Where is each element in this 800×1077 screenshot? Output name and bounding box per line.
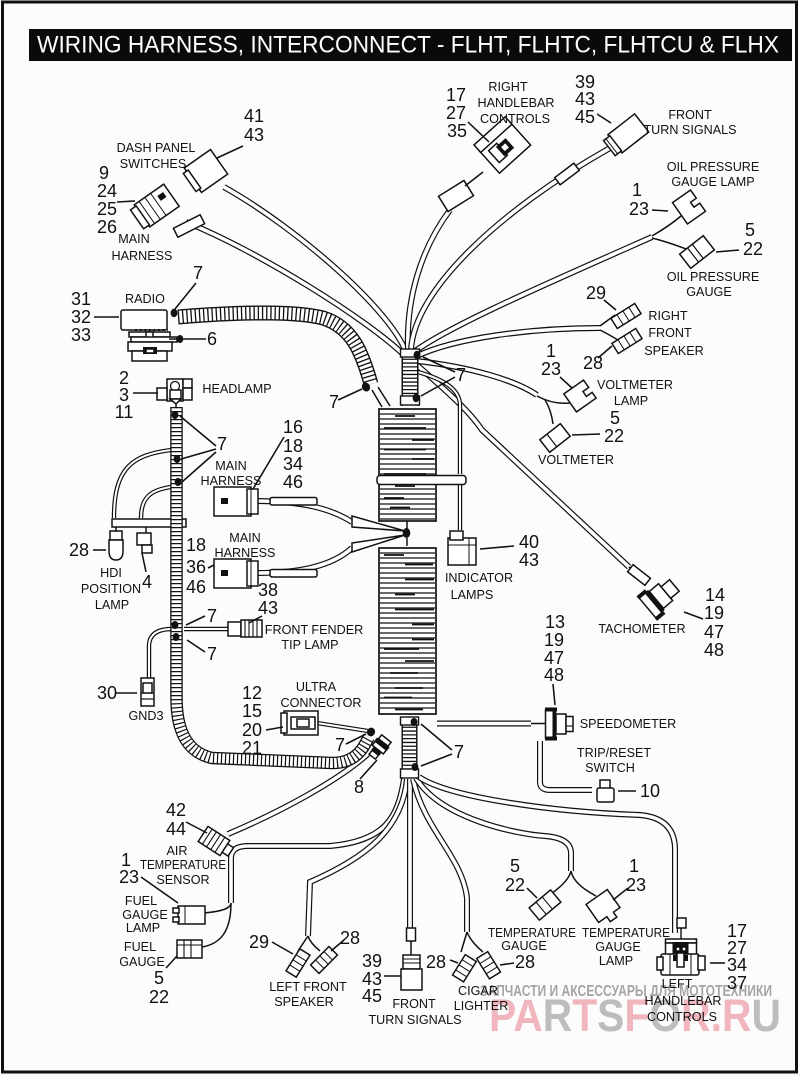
svg-text:TURN SIGNALS: TURN SIGNALS [643,123,736,137]
svg-text:MAIN: MAIN [229,531,260,545]
svg-text:GND3: GND3 [129,709,164,723]
svg-text:FRONT FENDER: FRONT FENDER [265,623,363,637]
svg-text:1: 1 [629,856,639,876]
svg-text:HARNESS: HARNESS [112,249,173,263]
svg-text:35: 35 [447,121,467,141]
svg-text:7: 7 [335,735,345,755]
svg-text:RADIO: RADIO [125,292,165,306]
svg-text:5: 5 [610,408,620,428]
svg-text:23: 23 [626,875,646,895]
svg-text:FUEL: FUEL [125,894,157,908]
svg-text:34: 34 [727,955,747,975]
svg-text:TIP LAMP: TIP LAMP [281,638,338,652]
svg-text:20: 20 [242,720,262,740]
svg-text:5: 5 [154,968,164,988]
svg-text:7: 7 [456,365,466,385]
svg-text:28: 28 [583,353,603,373]
svg-text:46: 46 [283,472,303,492]
svg-text:LAMPS: LAMPS [451,588,494,602]
svg-text:10: 10 [640,781,660,801]
svg-text:29: 29 [586,283,606,303]
svg-text:ULTRA: ULTRA [296,680,337,694]
svg-text:9: 9 [99,163,109,183]
svg-text:HDI: HDI [100,566,122,580]
svg-text:TEMPERATURE: TEMPERATURE [140,858,226,872]
svg-text:SPEAKER: SPEAKER [644,344,704,358]
svg-text:45: 45 [575,107,595,127]
svg-text:RIGHT: RIGHT [648,309,687,323]
svg-text:43: 43 [258,598,278,618]
svg-text:22: 22 [604,426,624,446]
svg-text:GAUGE: GAUGE [501,939,547,953]
svg-text:GAUGE: GAUGE [595,940,641,954]
svg-text:FUEL: FUEL [124,940,156,954]
svg-text:17: 17 [446,85,466,105]
svg-text:SWITCH: SWITCH [585,761,635,775]
svg-text:LAMP: LAMP [599,954,633,968]
svg-text:38: 38 [258,580,278,600]
svg-text:46: 46 [186,577,206,597]
svg-text:22: 22 [743,239,763,259]
svg-text:4: 4 [142,572,152,592]
svg-text:28: 28 [515,952,535,972]
svg-text:MAIN: MAIN [118,232,149,246]
svg-text:22: 22 [149,987,169,1007]
svg-text:WIRING HARNESS, INTERCONNECT -: WIRING HARNESS, INTERCONNECT - FLHT, FLH… [37,32,779,59]
svg-text:7: 7 [454,742,464,762]
svg-text:HANDLEBAR: HANDLEBAR [478,96,555,110]
svg-text:23: 23 [119,867,139,887]
svg-text:16: 16 [283,417,303,437]
svg-text:POSITION: POSITION [81,582,141,596]
svg-text:34: 34 [283,454,303,474]
svg-text:5: 5 [510,856,520,876]
svg-text:SWITCHES: SWITCHES [120,157,186,171]
svg-text:28: 28 [340,928,360,948]
svg-text:SENSOR: SENSOR [156,873,209,887]
svg-text:11: 11 [115,402,134,422]
svg-text:GAUGE: GAUGE [686,285,732,299]
svg-text:TRIP/RESET: TRIP/RESET [577,746,651,760]
svg-text:VOLTMETER: VOLTMETER [538,453,614,467]
svg-text:32: 32 [71,307,91,327]
svg-text:13: 13 [545,612,565,632]
svg-text:7: 7 [329,392,339,412]
svg-text:8: 8 [354,777,364,797]
svg-text:29: 29 [249,932,269,952]
svg-text:33: 33 [71,325,91,345]
svg-text:23: 23 [541,359,561,379]
svg-text:7: 7 [193,263,203,283]
svg-text:40: 40 [519,532,539,552]
svg-text:19: 19 [544,630,564,650]
svg-text:28: 28 [69,540,89,560]
svg-text:43: 43 [244,125,264,145]
svg-text:28: 28 [426,952,446,972]
svg-text:47: 47 [704,622,724,642]
svg-text:43: 43 [519,550,539,570]
svg-text:CIGAR: CIGAR [458,984,498,998]
svg-text:GAUGE: GAUGE [122,908,168,922]
svg-text:31: 31 [71,289,91,309]
svg-text:48: 48 [704,640,724,660]
svg-text:41: 41 [244,106,264,126]
svg-text:OIL PRESSURE: OIL PRESSURE [667,270,760,284]
svg-text:FRONT: FRONT [392,997,436,1011]
svg-text:44: 44 [166,819,186,839]
svg-text:21: 21 [242,738,262,758]
svg-text:TEMPERATURE: TEMPERATURE [488,926,576,940]
svg-text:HEADLAMP: HEADLAMP [202,382,271,396]
svg-text:48: 48 [544,665,564,685]
svg-text:LAMP: LAMP [614,394,648,408]
svg-text:6: 6 [207,329,217,349]
svg-text:FRONT: FRONT [668,108,712,122]
svg-text:39: 39 [362,951,382,971]
svg-text:26: 26 [97,217,117,237]
svg-text:GAUGE: GAUGE [119,955,165,969]
svg-text:7: 7 [207,644,217,664]
svg-text:GAUGE LAMP: GAUGE LAMP [671,175,754,189]
svg-text:7: 7 [207,606,217,626]
svg-text:1: 1 [546,341,556,361]
svg-text:23: 23 [629,199,649,219]
svg-text:43: 43 [575,89,595,109]
svg-text:HARNESS: HARNESS [201,474,262,488]
svg-text:25: 25 [97,199,117,219]
svg-text:LEFT FRONT: LEFT FRONT [269,980,347,994]
svg-text:36: 36 [186,557,206,577]
svg-text:CONTROLS: CONTROLS [480,112,550,126]
svg-text:TACHOMETER: TACHOMETER [598,622,685,636]
svg-text:LAMP: LAMP [126,921,160,935]
svg-text:42: 42 [166,800,186,820]
svg-text:45: 45 [362,986,382,1006]
svg-text:HARNESS: HARNESS [215,546,276,560]
svg-text:OIL PRESSURE: OIL PRESSURE [667,160,760,174]
svg-text:LIGHTER: LIGHTER [454,999,509,1013]
svg-text:15: 15 [242,701,262,721]
svg-text:1: 1 [632,180,642,200]
svg-text:CONTROLS: CONTROLS [647,1010,717,1024]
svg-text:22: 22 [505,875,525,895]
svg-text:PARTSFOR.RU: PARTSFOR.RU [489,990,781,1041]
svg-text:SPEAKER: SPEAKER [274,995,334,1009]
svg-text:HANDLEBAR: HANDLEBAR [645,994,722,1008]
svg-text:37: 37 [727,973,747,993]
svg-text:LAMP: LAMP [95,598,129,612]
svg-text:AIR: AIR [167,844,188,858]
svg-text:24: 24 [97,181,117,201]
svg-text:5: 5 [745,220,755,240]
svg-text:VOLTMETER: VOLTMETER [597,378,673,392]
svg-text:14: 14 [705,585,725,605]
svg-text:TEMPERATURE: TEMPERATURE [582,926,670,940]
svg-text:MAIN: MAIN [215,459,246,473]
svg-text:19: 19 [704,603,724,623]
svg-text:CONNECTOR: CONNECTOR [281,696,362,710]
svg-text:18: 18 [283,436,303,456]
svg-text:12: 12 [242,683,262,703]
svg-text:TURN SIGNALS: TURN SIGNALS [368,1013,461,1027]
svg-text:7: 7 [217,434,227,454]
svg-text:INDICATOR: INDICATOR [445,571,513,585]
svg-text:RIGHT: RIGHT [488,80,527,94]
svg-text:27: 27 [446,103,466,123]
svg-text:SPEEDOMETER: SPEEDOMETER [580,717,677,731]
svg-text:30: 30 [97,683,117,703]
svg-text:FRONT: FRONT [648,326,692,340]
svg-text:18: 18 [186,535,206,555]
svg-text:DASH PANEL: DASH PANEL [117,141,196,155]
svg-text:LEFT: LEFT [662,977,693,991]
